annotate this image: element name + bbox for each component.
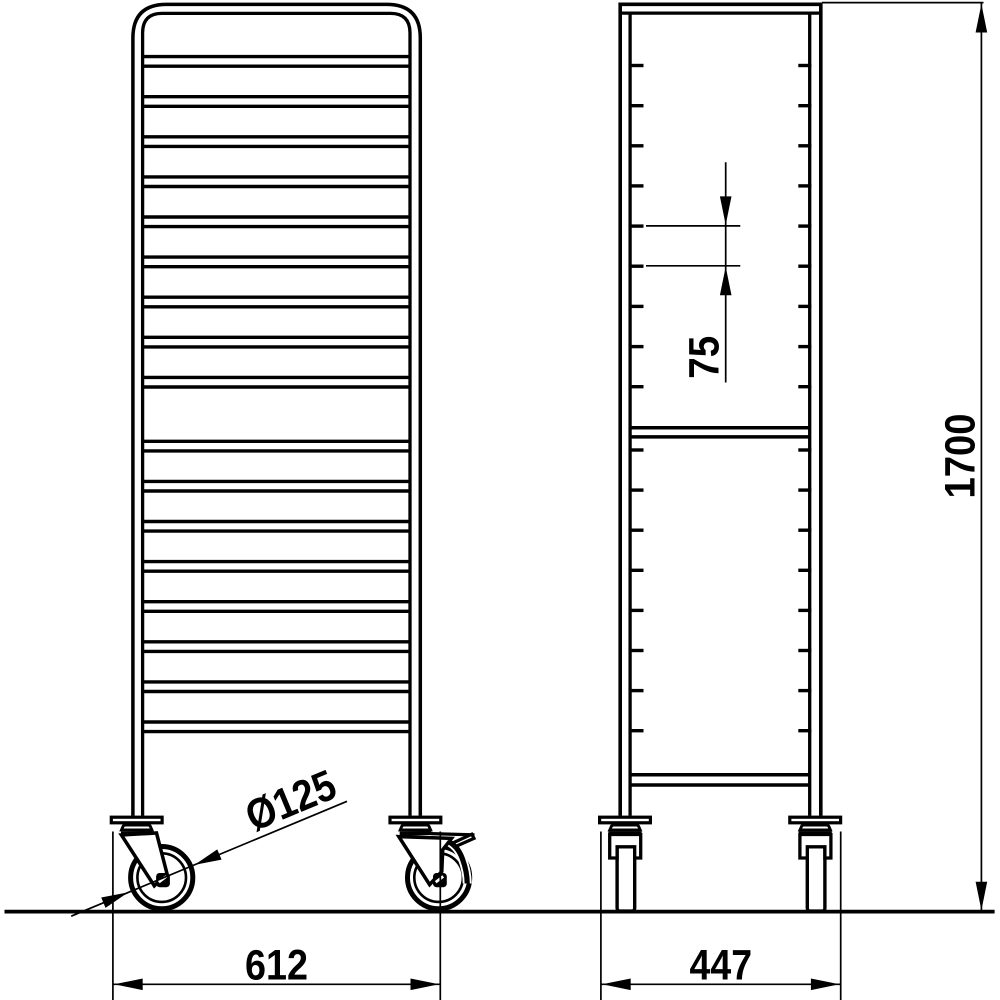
svg-text:1700: 1700 — [937, 414, 985, 499]
svg-text:612: 612 — [245, 942, 308, 990]
svg-text:447: 447 — [690, 942, 753, 990]
svg-text:75: 75 — [681, 336, 729, 379]
